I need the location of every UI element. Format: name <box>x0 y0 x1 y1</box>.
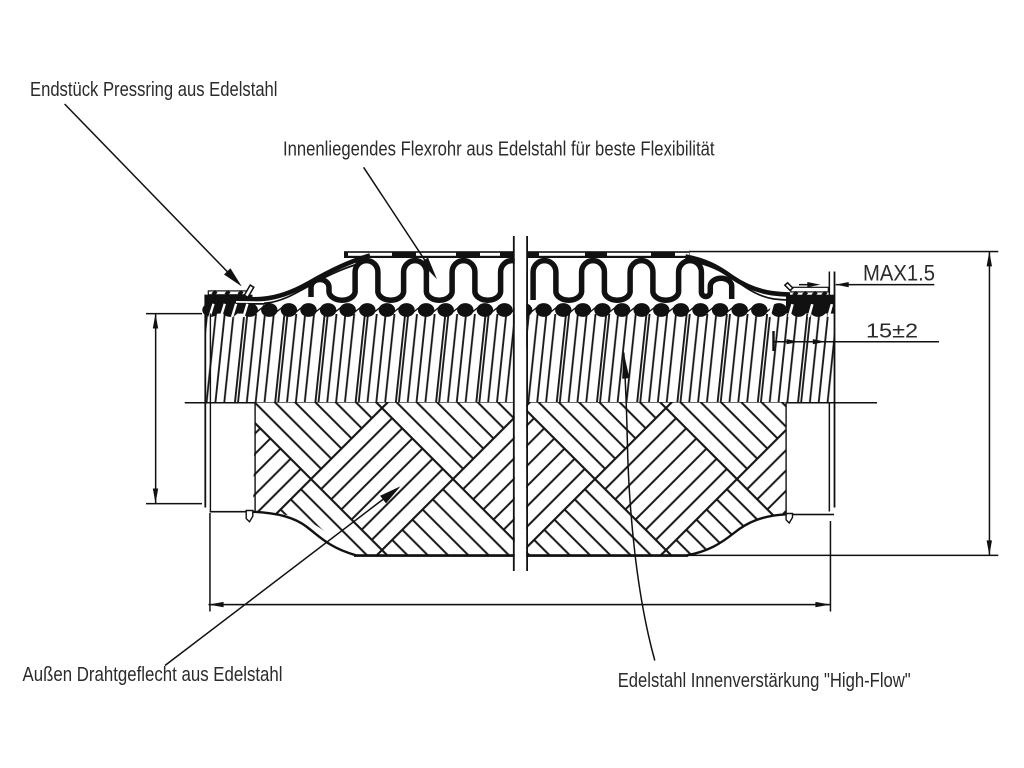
svg-text:Innenliegendes Flexrohr aus Ed: Innenliegendes Flexrohr aus Edelstahl fü… <box>283 138 715 161</box>
svg-text:15±2: 15±2 <box>866 321 918 343</box>
svg-text:MAX1.5: MAX1.5 <box>863 261 935 286</box>
svg-text:Endstück Pressring aus Edelsta: Endstück Pressring aus Edelstahl <box>30 78 278 101</box>
svg-text:Außen Drahtgeflecht aus Edelst: Außen Drahtgeflecht aus Edelstahl <box>23 663 283 686</box>
svg-text:Edelstahl Innenverstärkung "Hi: Edelstahl Innenverstärkung "High-Flow" <box>618 669 911 692</box>
